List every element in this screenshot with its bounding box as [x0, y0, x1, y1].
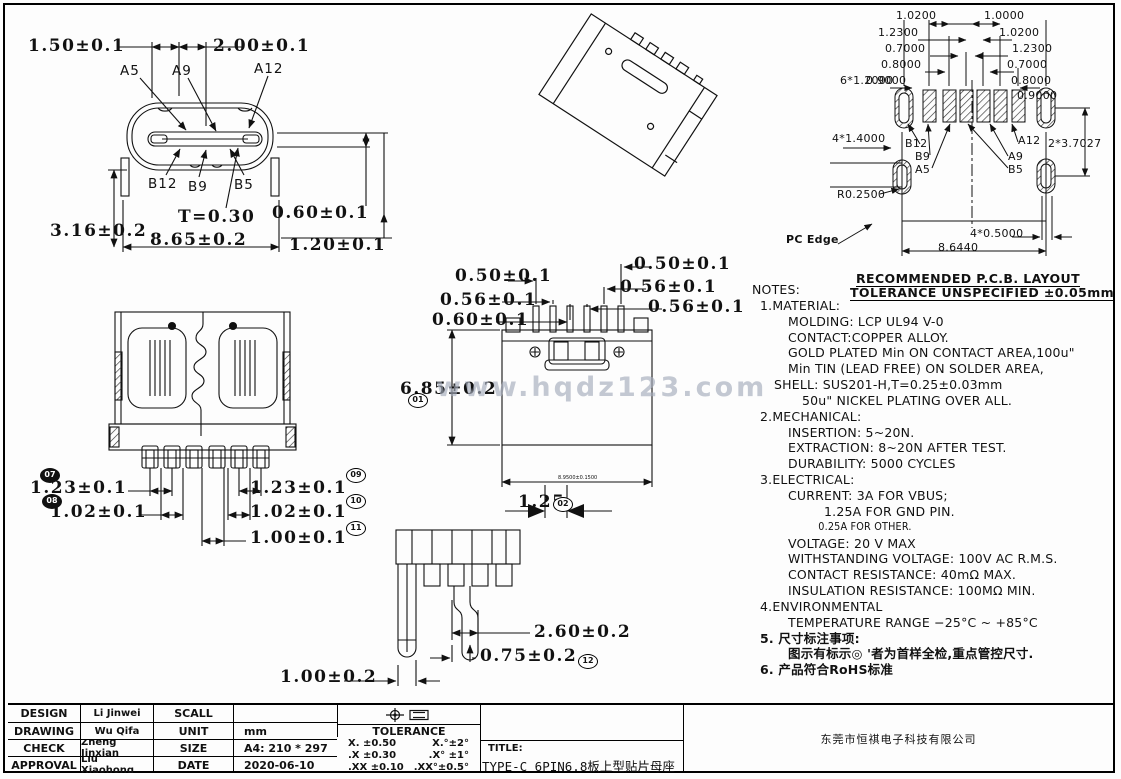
note-line: INSULATION RESISTANCE: 100MΩ MIN. [752, 583, 1118, 599]
pcb-dim-right-5: 0.9000 [1017, 89, 1057, 102]
balloon-09: 09 [346, 468, 366, 483]
balloon-07: 07 [40, 468, 60, 483]
tb-check-name: Zheng Jinxian [80, 739, 153, 756]
dim-2-00: 2.00±0.1 [213, 36, 310, 56]
balloon-12: 12 [578, 654, 598, 669]
tol-angular-1: X.°±2° [432, 738, 469, 749]
watermark: www.hqdz123.com [436, 372, 767, 403]
pin-label-b12: B12 [148, 176, 177, 192]
pcb-dim-2x3-7: 2*3.7027 [1048, 137, 1101, 150]
note-line: INSERTION: 5~20N. [752, 425, 1118, 441]
dim-t-0-30: T=0.30 [178, 207, 255, 227]
tb-approval-label: APPROVAL [8, 756, 80, 773]
tb-approval-name: Liu Xiaohong [80, 756, 153, 773]
dim-0-56-right2: 0.56±0.1 [648, 297, 745, 317]
isometric-view-drawing [539, 7, 724, 178]
tb-tolerance-row: X. ±0.50 X.°±2° [338, 738, 479, 749]
dim-0-56-right: 0.56±0.1 [620, 277, 717, 297]
note-line: CURRENT: 3A FOR VBUS; [752, 488, 1118, 504]
pin-label-a12: A12 [254, 61, 283, 77]
dim-1-23-right: 1.23±0.1 [250, 478, 347, 498]
pcb-pin-b5: B5 [1008, 163, 1023, 176]
tb-drawing-name-text: Wu Qifa [95, 726, 140, 737]
tol-linear-1: X. ±0.50 [348, 738, 396, 749]
tb-unit-label: UNIT [153, 722, 233, 739]
tb-check-name-text: Zheng Jinxian [81, 739, 153, 756]
tb-date-label: DATE [153, 756, 233, 773]
note-line: Min TIN (LEAD FREE) ON SOLDER AREA, [752, 361, 1118, 377]
pcb-dim-right-3: 0.7000 [1007, 58, 1047, 71]
dim-rear-width-small: 8.9500±0.1500 [558, 475, 597, 481]
tb-unit-value: mm [233, 722, 337, 739]
dim-1-20: 1.20±0.1 [289, 235, 386, 255]
dim-1-02-left: 1.02±0.1 [50, 502, 147, 522]
note-line: DURABILITY: 5000 CYCLES [752, 456, 1118, 472]
tb-tolerance-row: .X ±0.30 .X° ±1° [338, 750, 479, 761]
pcb-dim-left-0: 1.0200 [896, 9, 936, 22]
pcb-dim-r0-25: R0.2500 [837, 188, 885, 201]
balloon-02: 02 [553, 497, 573, 512]
note-line: MOLDING: LCP UL94 V-0 [752, 314, 1118, 330]
pcb-dim-8-644: 8.6440 [938, 241, 978, 254]
pcb-pin-a5: A5 [915, 163, 930, 176]
pcb-dim-right-1: 1.0200 [999, 26, 1039, 39]
tb-projection-cell [337, 705, 480, 724]
notes-title: NOTES: [752, 282, 1118, 298]
tb-tolerance-header: TOLERANCE [337, 724, 480, 737]
balloon-10: 10 [346, 494, 366, 509]
dim-0-50-right: 0.50±0.1 [634, 254, 731, 274]
pin-label-b5: B5 [234, 177, 254, 193]
note-line-cn: 图示有标示◎ '者为首样全检,重点管控尺寸. [752, 646, 1118, 662]
tb-tolerance-row: .XX ±0.10 .XX°±0.5° [338, 762, 479, 773]
title-block: DESIGN Li Jinwei DRAWING Wu Qifa CHECK Z… [8, 703, 1113, 771]
balloon-01: 01 [408, 393, 428, 408]
pcb-pc-edge-label: PC Edge [786, 233, 839, 246]
note-line: 2.MECHANICAL: [752, 409, 1118, 425]
note-line-cn: 5. 尺寸标注事项: [752, 631, 1118, 647]
pin-label-b9: B9 [188, 179, 208, 195]
note-line: TEMPERATURE RANGE −25°C ~ +85°C [752, 615, 1118, 631]
pcb-pin-a12: A12 [1018, 134, 1040, 147]
note-line: CONTACT:COPPER ALLOY. [752, 330, 1118, 346]
note-line: 1.MATERIAL: [752, 298, 1118, 314]
tb-design-name-text: Li Jinwei [94, 708, 141, 719]
dim-0-56-left: 0.56±0.1 [440, 290, 537, 310]
tb-scale-label: SCALL [153, 705, 233, 722]
pcb-dim-right-0: 1.0000 [984, 9, 1024, 22]
dim-0-60: 0.60±0.1 [272, 203, 369, 223]
pcb-dim-4x1-4: 4*1.4000 [832, 132, 885, 145]
dim-1-50: 1.50±0.1 [28, 36, 125, 56]
tb-approval-name-text: Liu Xiaohong [81, 756, 153, 773]
pcb-pin-a9: A9 [1008, 150, 1023, 163]
pcb-dim-right-2: 1.2300 [1012, 42, 1052, 55]
pcb-dim-left-2: 0.7000 [885, 42, 925, 55]
dim-1-02-right: 1.02±0.1 [250, 502, 347, 522]
note-line: 50u" NICKEL PLATING OVER ALL. [752, 393, 1118, 409]
pcb-pin-b12: B12 [905, 137, 927, 150]
tol-linear-3: .XX ±0.10 [348, 762, 404, 773]
pin-label-a5: A5 [120, 63, 140, 79]
tb-drawing-name: Wu Qifa [80, 722, 153, 739]
pcb-dim-left-3: 0.8000 [881, 58, 921, 71]
note-line: 3.ELECTRICAL: [752, 472, 1118, 488]
dim-1-00: 1.00±0.1 [250, 528, 347, 548]
dim-1-00-side: 1.00±0.2 [280, 667, 377, 687]
note-line: GOLD PLATED Min ON CONTACT AREA,100u" [752, 345, 1118, 361]
note-line: 4.ENVIRONMENTAL [752, 599, 1118, 615]
pcb-dim-4x0-5: 4*0.5000 [970, 227, 1023, 240]
pcb-pin-b9: B9 [915, 150, 930, 163]
pin-label-a9: A9 [172, 63, 192, 79]
tb-scale-value [233, 705, 337, 722]
note-line: EXTRACTION: 8~20N AFTER TEST. [752, 440, 1118, 456]
pcb-dim-right-4: 0.8000 [1011, 74, 1051, 87]
projection-symbol-icon [386, 708, 432, 722]
tb-company-name: 东莞市恒祺电子科技有限公司 [683, 705, 1113, 773]
note-line: 1.25A FOR GND PIN. [752, 504, 1118, 520]
dim-8-65: 8.65±0.2 [150, 230, 247, 250]
dim-0-60-rear: 0.60±0.1 [432, 310, 529, 330]
dim-2-60: 2.60±0.2 [534, 622, 631, 642]
dim-0-75: 0.75±0.2 [480, 646, 577, 666]
tb-title-divider [480, 740, 683, 741]
tol-linear-2: .X ±0.30 [348, 750, 396, 761]
note-line-cn: 6. 产品符合RoHS标准 [752, 662, 1118, 678]
tb-design-name: Li Jinwei [80, 705, 153, 722]
tb-check-label: CHECK [8, 739, 80, 756]
drawing-sheet: 1.50±0.1 2.00±0.1 A5 A9 A12 B12 B9 B5 T=… [0, 0, 1121, 779]
tb-design-label: DESIGN [8, 705, 80, 722]
tol-angular-3: .XX°±0.5° [414, 762, 469, 773]
tb-title-label: TITLE: [488, 743, 523, 754]
note-line: 0.25A FOR OTHER. [752, 520, 1089, 536]
tb-size-value: A4: 210 * 297 [233, 739, 337, 756]
note-line: VOLTAGE: 20 V MAX [752, 536, 1118, 552]
tb-title-text: TYPE-C 6PIN6.8板上型贴片母座 [482, 756, 675, 775]
dim-0-50-left: 0.50±0.1 [455, 266, 552, 286]
balloon-11: 11 [346, 521, 366, 536]
tb-drawing-label: DRAWING [8, 722, 80, 739]
note-line: SHELL: SUS201-H,T=0.25±0.03mm [752, 377, 1118, 393]
tb-size-label: SIZE [153, 739, 233, 756]
pcb-dim-left-5: 0.9000 [866, 74, 906, 87]
balloon-08: 08 [42, 494, 62, 509]
tb-date-value: 2020-06-10 [233, 756, 337, 773]
dim-3-16: 3.16±0.2 [50, 221, 147, 241]
pcb-dim-left-1: 1.2300 [878, 26, 918, 39]
note-line: WITHSTANDING VOLTAGE: 100V AC R.M.S. [752, 551, 1118, 567]
tol-angular-2: .X° ±1° [429, 750, 469, 761]
note-line: CONTACT RESISTANCE: 40mΩ MAX. [752, 567, 1118, 583]
notes-section: NOTES: 1.MATERIAL: MOLDING: LCP UL94 V-0… [752, 282, 1118, 678]
